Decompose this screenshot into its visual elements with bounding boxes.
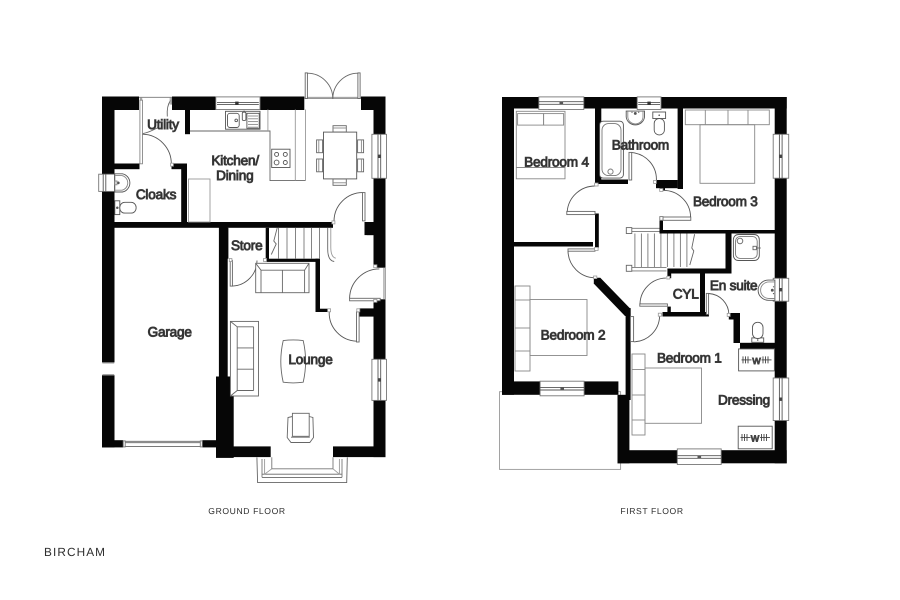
svg-text:Store: Store xyxy=(231,238,263,253)
svg-text:Bedroom 1: Bedroom 1 xyxy=(657,350,722,365)
svg-text:Lounge: Lounge xyxy=(288,352,332,367)
svg-text:Garage: Garage xyxy=(148,325,192,340)
svg-text:En suite: En suite xyxy=(710,278,758,293)
svg-text:FIRST FLOOR: FIRST FLOOR xyxy=(620,506,683,516)
svg-text:CYL: CYL xyxy=(673,287,699,302)
svg-text:Bedroom 4: Bedroom 4 xyxy=(524,155,589,170)
svg-text:Dressing: Dressing xyxy=(718,393,770,408)
svg-text:w: w xyxy=(750,433,760,445)
svg-text:Dining: Dining xyxy=(216,168,253,183)
svg-text:Cloaks: Cloaks xyxy=(136,187,177,202)
svg-text:Bedroom 2: Bedroom 2 xyxy=(541,328,606,343)
svg-text:BIRCHAM: BIRCHAM xyxy=(44,545,106,559)
svg-text:GROUND FLOOR: GROUND FLOOR xyxy=(208,506,285,516)
svg-text:Utility: Utility xyxy=(147,117,179,132)
svg-text:Bathroom: Bathroom xyxy=(612,138,669,153)
svg-text:Kitchen/: Kitchen/ xyxy=(211,153,259,168)
svg-text:w: w xyxy=(751,355,761,367)
svg-text:Bedroom 3: Bedroom 3 xyxy=(693,194,758,209)
